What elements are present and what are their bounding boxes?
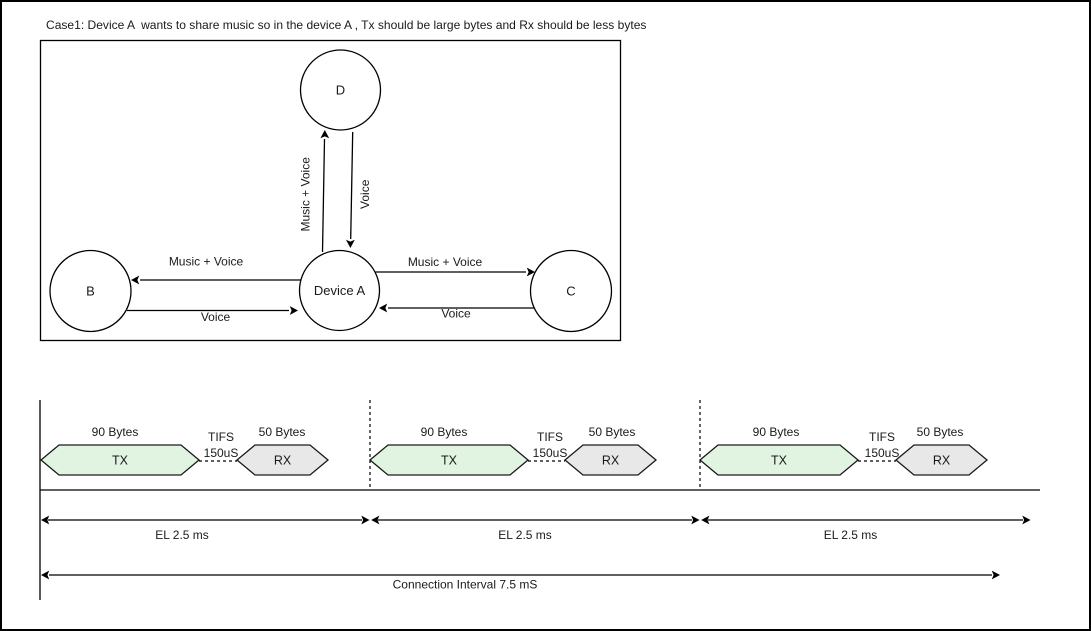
svg-text:TX: TX: [771, 454, 788, 468]
svg-text:EL 2.5 ms: EL 2.5 ms: [824, 528, 878, 542]
svg-text:Music + Voice: Music + Voice: [169, 255, 244, 269]
svg-text:TIFS: TIFS: [869, 430, 895, 444]
svg-text:150uS: 150uS: [865, 446, 900, 460]
svg-text:90 Bytes: 90 Bytes: [753, 425, 800, 439]
svg-text:Music + Voice: Music + Voice: [299, 157, 313, 232]
svg-text:EL 2.5 ms: EL 2.5 ms: [155, 528, 209, 542]
svg-text:TX: TX: [441, 454, 458, 468]
svg-text:Voice: Voice: [441, 307, 471, 321]
svg-text:Music + Voice: Music + Voice: [408, 255, 483, 269]
svg-text:D: D: [336, 83, 345, 98]
svg-text:RX: RX: [274, 454, 292, 468]
svg-text:RX: RX: [602, 454, 620, 468]
svg-text:B: B: [86, 284, 95, 299]
svg-text:Device A: Device A: [314, 283, 366, 298]
svg-text:90 Bytes: 90 Bytes: [421, 425, 468, 439]
svg-text:Voice: Voice: [358, 179, 372, 209]
svg-text:RX: RX: [933, 454, 951, 468]
svg-text:150uS: 150uS: [533, 446, 568, 460]
svg-text:Voice: Voice: [201, 310, 231, 324]
svg-text:Connection Interval 7.5 mS: Connection Interval 7.5 mS: [393, 578, 538, 592]
svg-text:50 Bytes: 50 Bytes: [259, 425, 306, 439]
svg-text:TX: TX: [112, 454, 129, 468]
svg-text:TIFS: TIFS: [208, 430, 234, 444]
svg-text:150uS: 150uS: [204, 446, 239, 460]
svg-text:50 Bytes: 50 Bytes: [917, 425, 964, 439]
svg-text:TIFS: TIFS: [537, 430, 563, 444]
svg-text:C: C: [566, 284, 575, 299]
svg-text:EL 2.5 ms: EL 2.5 ms: [498, 528, 552, 542]
svg-text:90 Bytes: 90 Bytes: [92, 425, 139, 439]
svg-text:Case1: Device A wants to shar: Case1: Device A wants to share music so …: [46, 18, 646, 32]
svg-text:50 Bytes: 50 Bytes: [589, 425, 636, 439]
